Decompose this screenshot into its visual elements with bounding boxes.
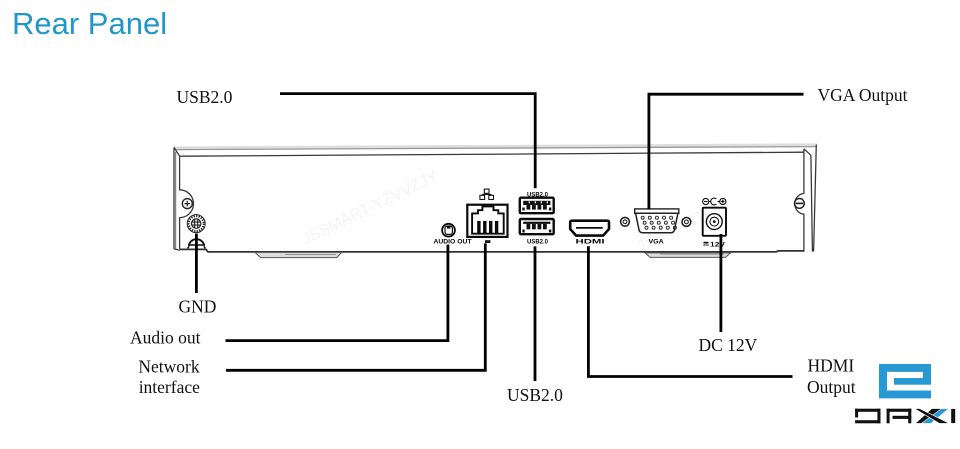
svg-text:12V: 12V bbox=[710, 241, 726, 248]
svg-text:Audio out: Audio out bbox=[130, 328, 201, 348]
svg-text:VGA: VGA bbox=[649, 239, 665, 246]
svg-text:USB2.0: USB2.0 bbox=[177, 87, 233, 107]
svg-text:Rear Panel: Rear Panel bbox=[12, 6, 167, 41]
svg-text:HDMI: HDMI bbox=[808, 356, 855, 376]
svg-text:USB2.0: USB2.0 bbox=[507, 385, 563, 405]
svg-text:Output: Output bbox=[807, 377, 856, 397]
svg-text:USB2.0: USB2.0 bbox=[527, 192, 549, 199]
svg-text:interface: interface bbox=[139, 377, 200, 397]
svg-text:HDMI: HDMI bbox=[576, 238, 605, 245]
svg-text:DC 12V: DC 12V bbox=[699, 335, 758, 355]
svg-text:Network: Network bbox=[138, 357, 199, 377]
svg-text:AUDIO OUT: AUDIO OUT bbox=[434, 239, 472, 246]
svg-text:VGA Output: VGA Output bbox=[818, 85, 908, 105]
svg-text:GND: GND bbox=[179, 297, 217, 317]
svg-text:USB2.0: USB2.0 bbox=[527, 239, 549, 246]
